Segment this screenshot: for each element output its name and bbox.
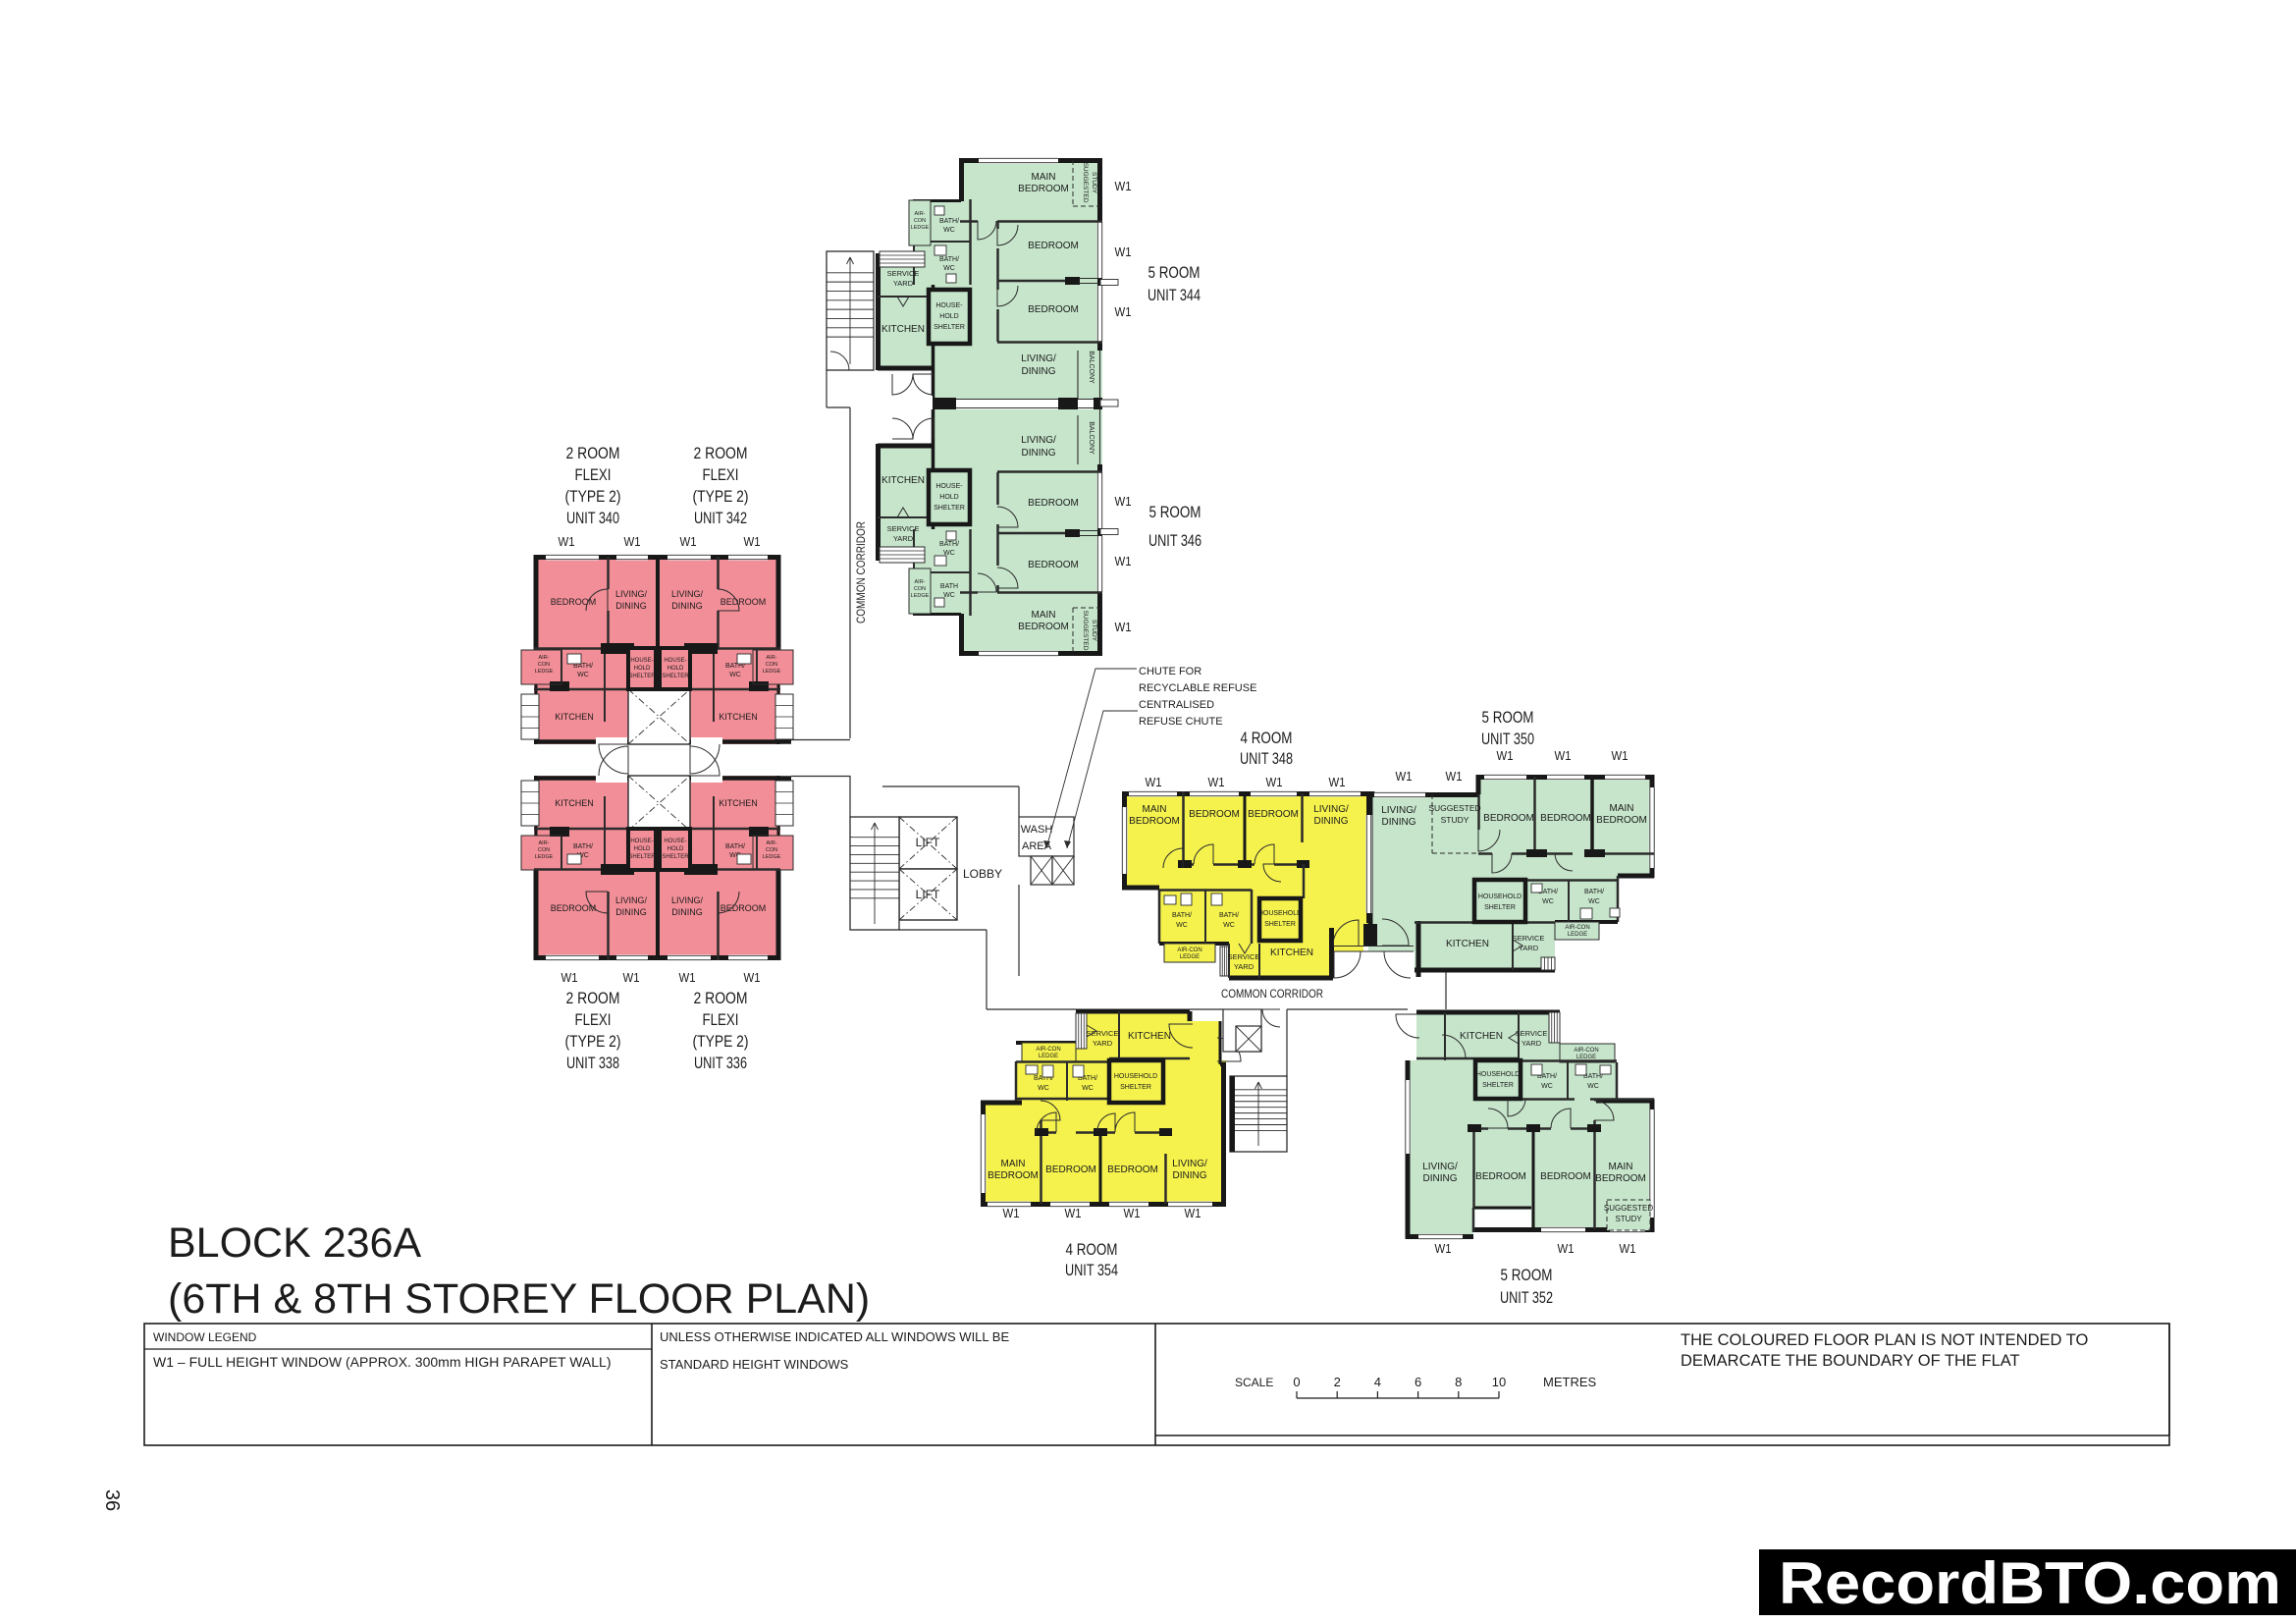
svg-text:W1: W1 <box>679 970 696 985</box>
svg-text:WC: WC <box>1587 1083 1599 1090</box>
svg-text:UNIT 352: UNIT 352 <box>1500 1289 1553 1307</box>
svg-text:BEDROOM: BEDROOM <box>1595 1173 1646 1184</box>
svg-text:KITCHEN: KITCHEN <box>1128 1031 1171 1042</box>
svg-text:LEDGE: LEDGE <box>535 669 554 675</box>
svg-text:UNIT 354: UNIT 354 <box>1065 1262 1118 1279</box>
svg-text:KITCHEN: KITCHEN <box>881 475 925 486</box>
svg-text:WC: WC <box>1542 898 1554 905</box>
svg-text:W1: W1 <box>1115 179 1132 193</box>
svg-text:WC: WC <box>1588 898 1600 905</box>
svg-text:W1 – FULL HEIGHT WINDOW (APP: W1 – FULL HEIGHT WINDOW (APPROX. 300mm H… <box>153 1354 611 1370</box>
svg-text:WC: WC <box>1082 1085 1094 1092</box>
svg-text:SHELTER: SHELTER <box>1484 904 1516 911</box>
svg-text:5 ROOM: 5 ROOM <box>1148 264 1201 282</box>
svg-text:BEDROOM: BEDROOM <box>1189 809 1240 820</box>
svg-text:W1: W1 <box>1435 1241 1452 1256</box>
svg-text:CON: CON <box>766 847 777 853</box>
svg-text:W1: W1 <box>1003 1206 1020 1220</box>
svg-text:36: 36 <box>101 1489 123 1511</box>
svg-text:KITCHEN: KITCHEN <box>881 324 925 335</box>
svg-text:UNLESS OTHERWISE INDICATED ALL: UNLESS OTHERWISE INDICATED ALL WINDOWS W… <box>660 1329 1009 1344</box>
svg-text:DINING: DINING <box>671 601 703 611</box>
svg-text:CHUTE FOR: CHUTE FOR <box>1139 666 1201 677</box>
svg-text:LEDGE: LEDGE <box>911 225 930 231</box>
svg-text:BATH/: BATH/ <box>725 843 745 850</box>
svg-text:2: 2 <box>1334 1375 1341 1389</box>
svg-text:BEDROOM: BEDROOM <box>1540 1171 1591 1182</box>
svg-text:WC: WC <box>577 672 589 678</box>
svg-text:W1: W1 <box>1115 554 1132 568</box>
svg-text:SHELTER: SHELTER <box>934 505 965 512</box>
svg-text:W1: W1 <box>1558 1241 1575 1256</box>
svg-text:WINDOW LEGEND: WINDOW LEGEND <box>153 1330 257 1344</box>
svg-text:LEDGE: LEDGE <box>535 854 554 860</box>
svg-text:SHELTER: SHELTER <box>628 674 656 679</box>
svg-text:WASH: WASH <box>1021 824 1053 836</box>
svg-text:LIVING/: LIVING/ <box>1021 435 1056 446</box>
svg-text:BEDROOM: BEDROOM <box>1483 813 1534 824</box>
svg-text:LIVING/: LIVING/ <box>1381 805 1416 816</box>
svg-text:FLEXI: FLEXI <box>575 466 612 484</box>
svg-text:LIVING/: LIVING/ <box>1313 804 1349 815</box>
svg-text:HOUSE-: HOUSE- <box>935 302 963 309</box>
svg-text:BATH/: BATH/ <box>939 541 959 548</box>
svg-text:W1: W1 <box>1115 494 1132 509</box>
svg-text:YARD: YARD <box>1093 1039 1113 1048</box>
svg-text:W1: W1 <box>1266 775 1283 789</box>
svg-text:WC: WC <box>943 227 955 234</box>
svg-text:LIVING/: LIVING/ <box>671 895 704 905</box>
svg-text:LIVING/: LIVING/ <box>1422 1162 1458 1172</box>
svg-text:KITCHEN: KITCHEN <box>1446 939 1489 949</box>
svg-text:SERVICE: SERVICE <box>1513 934 1545 943</box>
svg-text:W1: W1 <box>1497 748 1514 763</box>
svg-text:W1: W1 <box>561 970 578 985</box>
svg-text:BATH/: BATH/ <box>939 256 959 263</box>
svg-text:(6TH & 8TH STOREY FLOOR PLAN): (6TH & 8TH STOREY FLOOR PLAN) <box>168 1275 870 1323</box>
svg-text:HOUSEHOLD: HOUSEHOLD <box>1476 1071 1520 1078</box>
svg-text:AIR-CON: AIR-CON <box>1565 925 1589 931</box>
svg-text:LEDGE: LEDGE <box>911 593 930 599</box>
svg-text:MAIN: MAIN <box>1001 1159 1026 1169</box>
svg-text:SERVICE: SERVICE <box>887 524 920 533</box>
svg-text:BEDROOM: BEDROOM <box>1028 304 1079 315</box>
svg-text:SHELTER: SHELTER <box>662 854 689 860</box>
svg-text:LEDGE: LEDGE <box>1576 1055 1596 1060</box>
svg-text:RecordBTO.com: RecordBTO.com <box>1779 1550 2281 1616</box>
svg-text:AIR-CON: AIR-CON <box>1574 1048 1598 1054</box>
svg-text:5 ROOM: 5 ROOM <box>1482 709 1534 727</box>
svg-text:BEDROOM: BEDROOM <box>1028 241 1079 251</box>
svg-text:LEDGE: LEDGE <box>1568 932 1587 938</box>
svg-text:UNIT 342: UNIT 342 <box>694 510 747 527</box>
svg-text:STUDY: STUDY <box>1615 1215 1642 1223</box>
svg-text:WC: WC <box>1223 922 1235 929</box>
svg-text:WC: WC <box>729 672 741 678</box>
svg-text:AIR-: AIR- <box>767 840 777 846</box>
svg-text:MAIN: MAIN <box>1032 172 1056 183</box>
svg-text:2 ROOM: 2 ROOM <box>566 990 620 1007</box>
svg-text:AIR-: AIR- <box>539 655 550 661</box>
svg-text:W1: W1 <box>1446 769 1463 784</box>
svg-text:DINING: DINING <box>615 601 647 611</box>
svg-text:KITCHEN: KITCHEN <box>719 798 758 808</box>
svg-text:LIFT: LIFT <box>916 836 940 849</box>
svg-text:LEDGE: LEDGE <box>763 854 781 860</box>
svg-text:W1: W1 <box>1115 304 1132 319</box>
svg-text:UNIT 346: UNIT 346 <box>1148 532 1201 550</box>
svg-text:W1: W1 <box>624 534 641 549</box>
svg-text:4 ROOM: 4 ROOM <box>1241 730 1293 747</box>
svg-text:DINING: DINING <box>615 907 647 917</box>
svg-text:BEDROOM: BEDROOM <box>1107 1164 1158 1175</box>
svg-text:BEDROOM: BEDROOM <box>1129 816 1180 827</box>
svg-text:CON: CON <box>538 662 550 668</box>
svg-text:6: 6 <box>1415 1375 1421 1389</box>
svg-text:HOLD: HOLD <box>634 846 651 852</box>
svg-text:WC: WC <box>943 592 955 599</box>
svg-text:BATH/: BATH/ <box>939 218 959 225</box>
svg-text:W1: W1 <box>1555 748 1572 763</box>
svg-text:BATH: BATH <box>940 583 958 590</box>
svg-text:AIR-CON: AIR-CON <box>1177 947 1201 953</box>
svg-text:BEDROOM: BEDROOM <box>1018 622 1069 632</box>
svg-text:BALCONY: BALCONY <box>1088 421 1095 455</box>
svg-text:WC: WC <box>943 265 955 272</box>
svg-text:W1: W1 <box>1396 769 1413 784</box>
svg-text:BEDROOM: BEDROOM <box>1596 815 1647 826</box>
svg-text:LIVING/: LIVING/ <box>1021 353 1056 364</box>
svg-text:LEDGE: LEDGE <box>1039 1054 1058 1059</box>
svg-text:STUDY: STUDY <box>1441 815 1469 825</box>
svg-text:BALCONY: BALCONY <box>1088 351 1095 384</box>
svg-text:DINING: DINING <box>1022 448 1056 459</box>
svg-text:BLOCK 236A: BLOCK 236A <box>168 1219 421 1267</box>
svg-text:DINING: DINING <box>1022 366 1056 377</box>
svg-text:CON: CON <box>914 218 926 224</box>
svg-text:BATH/: BATH/ <box>1584 889 1604 895</box>
svg-text:SHELTER: SHELTER <box>628 854 656 860</box>
svg-text:W1: W1 <box>744 970 761 985</box>
svg-text:4: 4 <box>1374 1375 1381 1389</box>
svg-text:SUGGESTED: SUGGESTED <box>1428 803 1480 813</box>
svg-text:HOUSEHOLD: HOUSEHOLD <box>1258 910 1302 917</box>
svg-text:STUDY: STUDY <box>1091 172 1097 194</box>
svg-text:W1: W1 <box>1115 620 1132 634</box>
svg-text:(TYPE 2): (TYPE 2) <box>693 488 749 506</box>
svg-text:STUDY: STUDY <box>1091 620 1097 642</box>
svg-text:BEDROOM: BEDROOM <box>721 903 767 913</box>
svg-text:SHELTER: SHELTER <box>662 674 689 679</box>
svg-text:LIVING/: LIVING/ <box>615 589 648 599</box>
svg-text:DINING: DINING <box>1314 816 1349 827</box>
svg-text:W1: W1 <box>1208 775 1225 789</box>
svg-text:SCALE: SCALE <box>1235 1376 1273 1389</box>
svg-text:BEDROOM: BEDROOM <box>1045 1164 1096 1175</box>
svg-text:KITCHEN: KITCHEN <box>555 712 594 722</box>
svg-text:LIVING/: LIVING/ <box>615 895 648 905</box>
svg-text:HOLD: HOLD <box>939 313 958 320</box>
svg-text:HOLD: HOLD <box>939 494 958 501</box>
svg-text:MAIN: MAIN <box>1609 1162 1633 1172</box>
svg-text:LIVING/: LIVING/ <box>1172 1159 1207 1169</box>
svg-text:BEDROOM: BEDROOM <box>721 597 767 607</box>
svg-text:10: 10 <box>1492 1375 1506 1389</box>
svg-text:BEDROOM: BEDROOM <box>1475 1171 1526 1182</box>
svg-text:2 ROOM: 2 ROOM <box>566 445 620 462</box>
svg-text:MAIN: MAIN <box>1032 610 1056 621</box>
svg-text:YARD: YARD <box>1234 962 1255 971</box>
svg-text:FLEXI: FLEXI <box>703 1011 739 1029</box>
svg-text:SHELTER: SHELTER <box>934 324 965 331</box>
svg-text:SHELTER: SHELTER <box>1120 1084 1151 1091</box>
svg-text:MAIN: MAIN <box>1610 803 1634 814</box>
svg-text:BATH/: BATH/ <box>1219 912 1239 919</box>
svg-text:AIR-CON: AIR-CON <box>1036 1047 1060 1053</box>
svg-text:HOLD: HOLD <box>667 666 684 672</box>
svg-text:DINING: DINING <box>1382 817 1416 828</box>
svg-text:CON: CON <box>914 586 926 592</box>
svg-text:DINING: DINING <box>671 907 703 917</box>
svg-text:LIFT: LIFT <box>916 888 940 901</box>
svg-text:HOLD: HOLD <box>634 666 651 672</box>
svg-text:UNIT 336: UNIT 336 <box>694 1055 747 1072</box>
svg-text:W1: W1 <box>1124 1206 1141 1220</box>
svg-text:BEDROOM: BEDROOM <box>1028 498 1079 509</box>
svg-text:BEDROOM: BEDROOM <box>1248 809 1299 820</box>
svg-text:KITCHEN: KITCHEN <box>555 798 594 808</box>
svg-text:UNIT 344: UNIT 344 <box>1148 287 1201 304</box>
svg-text:CENTRALISED: CENTRALISED <box>1139 699 1214 711</box>
svg-text:CON: CON <box>538 847 550 853</box>
svg-text:2 ROOM: 2 ROOM <box>694 990 748 1007</box>
svg-text:W1: W1 <box>559 534 575 549</box>
svg-text:5 ROOM: 5 ROOM <box>1149 504 1201 521</box>
svg-text:COMMON CORRIDOR: COMMON CORRIDOR <box>1221 987 1323 1001</box>
svg-text:SERVICE: SERVICE <box>1228 952 1260 961</box>
svg-text:REFUSE CHUTE: REFUSE CHUTE <box>1139 716 1223 728</box>
svg-text:WC: WC <box>1176 922 1188 929</box>
svg-text:AIR-: AIR- <box>767 655 777 661</box>
svg-text:HOUSE-: HOUSE- <box>664 658 686 664</box>
svg-text:HOUSE-: HOUSE- <box>630 658 653 664</box>
svg-text:WC: WC <box>1541 1083 1553 1090</box>
svg-text:2 ROOM: 2 ROOM <box>694 445 748 462</box>
svg-text:LIVING/: LIVING/ <box>671 589 704 599</box>
svg-text:HOUSE-: HOUSE- <box>935 483 963 490</box>
svg-text:FLEXI: FLEXI <box>575 1011 612 1029</box>
svg-text:KITCHEN: KITCHEN <box>1460 1031 1503 1042</box>
svg-text:BEDROOM: BEDROOM <box>1540 813 1591 824</box>
svg-text:BEDROOM: BEDROOM <box>988 1170 1039 1181</box>
svg-text:W1: W1 <box>1329 775 1346 789</box>
svg-text:AIR-: AIR- <box>915 579 926 585</box>
svg-text:BATH/: BATH/ <box>1172 912 1192 919</box>
svg-text:FLEXI: FLEXI <box>703 466 739 484</box>
svg-text:(TYPE 2): (TYPE 2) <box>693 1033 749 1051</box>
svg-text:HOUSE-: HOUSE- <box>630 839 653 844</box>
svg-text:MAIN: MAIN <box>1143 804 1167 815</box>
svg-text:W1: W1 <box>623 970 640 985</box>
svg-text:(TYPE 2): (TYPE 2) <box>565 1033 621 1051</box>
svg-text:DINING: DINING <box>1423 1173 1458 1184</box>
svg-text:W1: W1 <box>744 534 761 549</box>
svg-text:HOUSEHOLD: HOUSEHOLD <box>1114 1073 1157 1080</box>
svg-text:8: 8 <box>1455 1375 1462 1389</box>
svg-text:KITCHEN: KITCHEN <box>1270 947 1313 958</box>
svg-text:HOUSE-: HOUSE- <box>664 839 686 844</box>
svg-text:UNIT 350: UNIT 350 <box>1481 731 1534 748</box>
svg-text:AIR-: AIR- <box>539 840 550 846</box>
svg-text:W1: W1 <box>1065 1206 1082 1220</box>
svg-text:DEMARCATE THE BOUNDARY OF THE: DEMARCATE THE BOUNDARY OF THE FLAT <box>1681 1352 2020 1370</box>
svg-text:YARD: YARD <box>1522 1039 1542 1048</box>
svg-text:BEDROOM: BEDROOM <box>551 903 597 913</box>
svg-text:HOUSEHOLD: HOUSEHOLD <box>1478 893 1522 900</box>
svg-text:LOBBY: LOBBY <box>963 867 1002 881</box>
svg-text:W1: W1 <box>1612 748 1629 763</box>
svg-text:AIR-: AIR- <box>915 211 926 217</box>
svg-text:BATH/: BATH/ <box>573 843 593 850</box>
svg-text:DINING: DINING <box>1173 1170 1207 1181</box>
svg-text:LEDGE: LEDGE <box>763 669 781 675</box>
svg-text:0: 0 <box>1293 1375 1300 1389</box>
svg-text:SHELTER: SHELTER <box>1482 1082 1514 1089</box>
svg-text:KITCHEN: KITCHEN <box>719 712 758 722</box>
svg-text:RECYCLABLE REFUSE: RECYCLABLE REFUSE <box>1139 682 1256 694</box>
svg-text:UNIT 338: UNIT 338 <box>566 1055 619 1072</box>
svg-text:W1: W1 <box>1185 1206 1201 1220</box>
svg-text:BEDROOM: BEDROOM <box>1028 560 1079 570</box>
svg-text:(TYPE 2): (TYPE 2) <box>565 488 621 506</box>
svg-text:UNIT 348: UNIT 348 <box>1240 750 1293 768</box>
svg-text:SUGGESTED: SUGGESTED <box>1604 1204 1653 1213</box>
svg-text:SUGGESTED: SUGGESTED <box>1082 611 1089 651</box>
svg-text:W1: W1 <box>1620 1241 1636 1256</box>
svg-text:LEDGE: LEDGE <box>1180 954 1200 960</box>
svg-text:METRES: METRES <box>1543 1375 1597 1389</box>
svg-text:UNIT 340: UNIT 340 <box>566 510 619 527</box>
svg-text:4 ROOM: 4 ROOM <box>1066 1241 1118 1259</box>
svg-text:WC: WC <box>1038 1085 1049 1092</box>
svg-text:HOLD: HOLD <box>667 846 684 852</box>
svg-text:THE COLOURED FLOOR PLAN IS NOT: THE COLOURED FLOOR PLAN IS NOT INTENDED … <box>1681 1331 2088 1349</box>
svg-text:STANDARD HEIGHT WINDOWS: STANDARD HEIGHT WINDOWS <box>660 1357 849 1372</box>
svg-text:W1: W1 <box>1146 775 1162 789</box>
svg-text:YARD: YARD <box>893 279 914 288</box>
svg-text:YARD: YARD <box>893 534 914 543</box>
svg-text:SHELTER: SHELTER <box>1264 921 1296 928</box>
svg-text:SUGGESTED: SUGGESTED <box>1082 163 1089 203</box>
svg-text:W1: W1 <box>1115 244 1132 259</box>
svg-text:BEDROOM: BEDROOM <box>1018 184 1069 194</box>
svg-text:COMMON CORRIDOR: COMMON CORRIDOR <box>854 521 868 623</box>
svg-text:SERVICE: SERVICE <box>1516 1029 1548 1038</box>
svg-text:SERVICE: SERVICE <box>1087 1029 1119 1038</box>
svg-text:5 ROOM: 5 ROOM <box>1501 1267 1553 1284</box>
svg-text:SERVICE: SERVICE <box>887 269 920 278</box>
svg-text:CON: CON <box>766 662 777 668</box>
svg-text:W1: W1 <box>680 534 697 549</box>
